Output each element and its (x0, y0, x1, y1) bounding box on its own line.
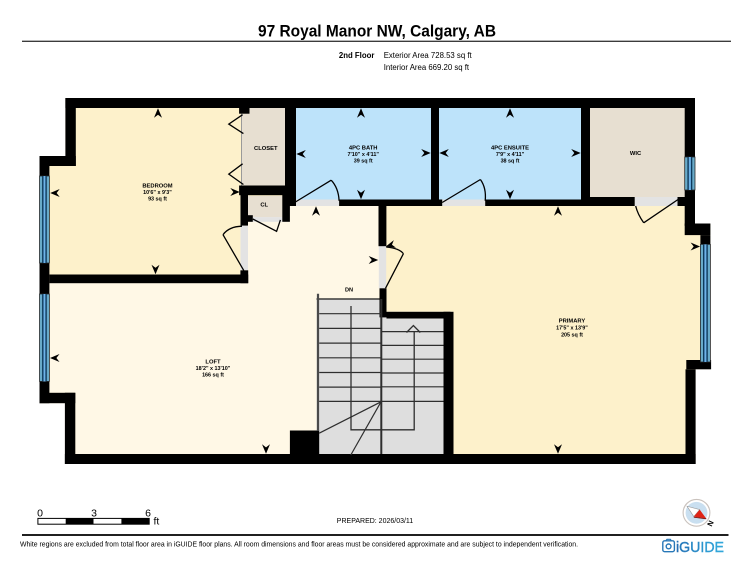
svg-text:ft: ft (154, 516, 160, 528)
svg-text:LOFT: LOFT (205, 359, 221, 365)
svg-text:4PC BATH: 4PC BATH (349, 145, 378, 151)
svg-text:205 sq ft: 205 sq ft (561, 333, 583, 339)
svg-text:2nd Floor: 2nd Floor (339, 51, 375, 60)
svg-text:White regions are excluded fro: White regions are excluded from total fl… (20, 542, 578, 549)
svg-text:iGUIDE: iGUIDE (676, 539, 724, 556)
svg-text:97 Royal Manor NW, Calgary, AB: 97 Royal Manor NW, Calgary, AB (258, 23, 496, 41)
svg-text:4PC ENSUITE: 4PC ENSUITE (491, 145, 529, 151)
svg-text:Exterior Area 728.53 sq ft: Exterior Area 728.53 sq ft (384, 51, 473, 60)
svg-text:18'2" x 13'10": 18'2" x 13'10" (196, 366, 231, 372)
svg-text:166 sq ft: 166 sq ft (202, 372, 224, 378)
svg-text:10'6" x 9'3": 10'6" x 9'3" (143, 190, 172, 196)
svg-text:93 sq ft: 93 sq ft (148, 197, 167, 203)
svg-text:39 sq ft: 39 sq ft (354, 158, 373, 164)
svg-text:3: 3 (91, 507, 97, 519)
svg-text:BEDROOM: BEDROOM (142, 184, 172, 190)
svg-text:PREPARED: 2026/03/11: PREPARED: 2026/03/11 (337, 518, 414, 525)
svg-text:17'5" x 13'9": 17'5" x 13'9" (556, 326, 588, 332)
svg-text:Interior Area 669.20 sq ft: Interior Area 669.20 sq ft (384, 63, 470, 72)
svg-text:7'10" x 4'11": 7'10" x 4'11" (348, 152, 380, 158)
svg-text:0: 0 (37, 507, 43, 519)
svg-text:CLOSET: CLOSET (254, 146, 278, 152)
svg-text:38 sq ft: 38 sq ft (501, 158, 520, 164)
svg-text:7'9" x 4'11": 7'9" x 4'11" (496, 152, 525, 158)
svg-text:6: 6 (145, 507, 151, 519)
svg-text:CL: CL (260, 202, 268, 208)
svg-text:DN: DN (345, 288, 353, 294)
svg-text:PRIMARY: PRIMARY (559, 319, 586, 325)
svg-text:WIC: WIC (630, 151, 642, 157)
